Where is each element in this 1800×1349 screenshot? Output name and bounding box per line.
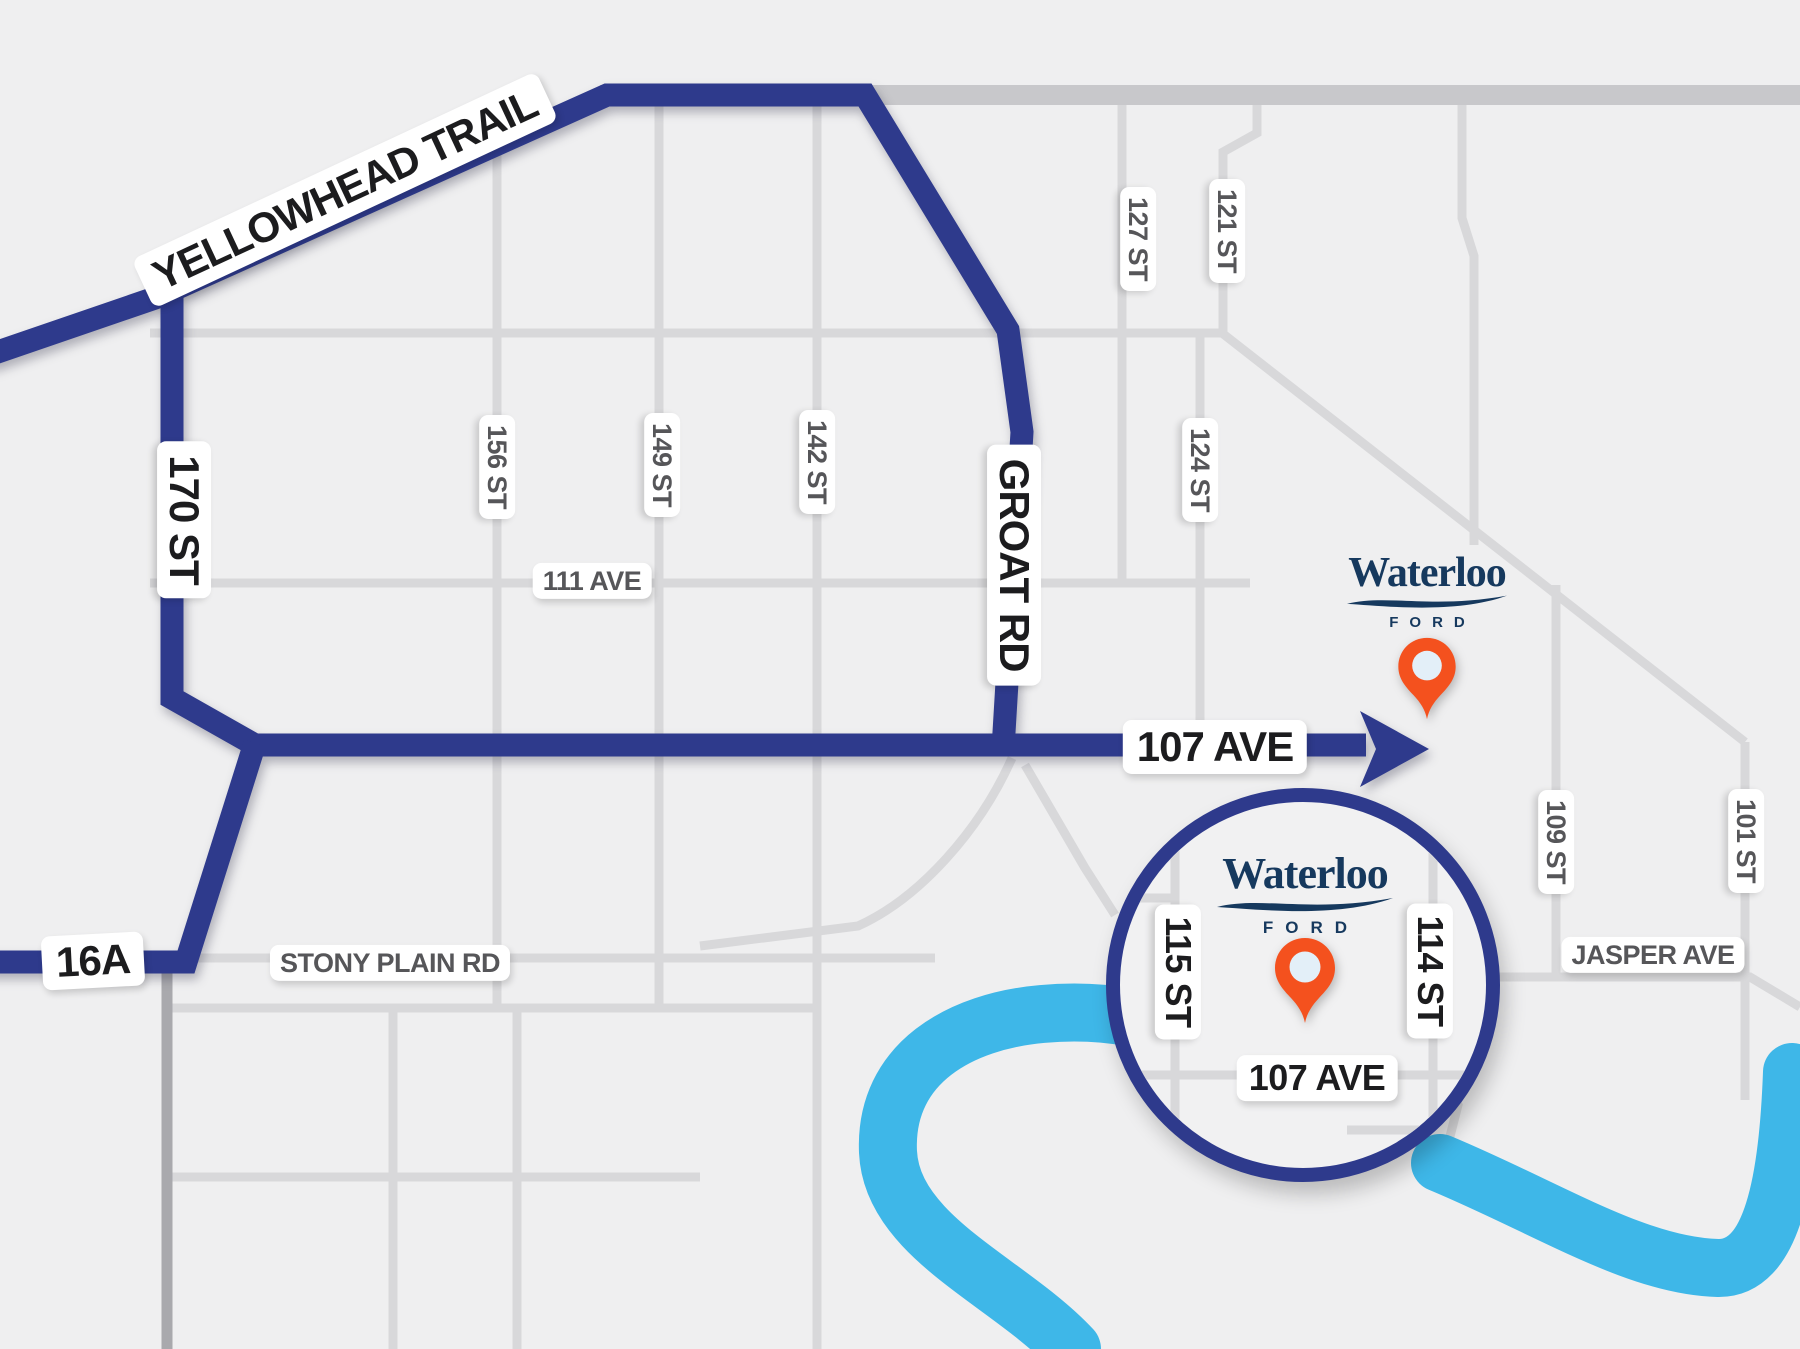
inset-label-107-ave: 107 AVE bbox=[1237, 1055, 1398, 1101]
road-valley-west bbox=[700, 758, 1012, 946]
label-121-st: 121 ST bbox=[1209, 179, 1245, 283]
label-101-st: 101 ST bbox=[1728, 789, 1764, 893]
label-107-ave: 107 AVE bbox=[1123, 720, 1307, 774]
label-111-ave: 111 AVE bbox=[533, 563, 652, 599]
inset-brand-wordmark: Waterloo bbox=[1222, 852, 1388, 896]
label-142-st: 142 ST bbox=[799, 410, 835, 514]
river-east-arm bbox=[1440, 1072, 1792, 1268]
label-156-st: 156 ST bbox=[479, 415, 515, 519]
inset-dealership-logo: Waterloo FORD bbox=[1203, 852, 1408, 938]
label-groat-rd: GROAT RD bbox=[987, 445, 1041, 686]
road-116-st bbox=[1462, 103, 1474, 545]
brand-wordmark: Waterloo bbox=[1348, 552, 1506, 594]
label-124-st: 124 ST bbox=[1182, 418, 1218, 522]
label-jasper-ave: JASPER AVE bbox=[1561, 937, 1744, 973]
label-149-st: 149 ST bbox=[644, 413, 680, 517]
label-109-st: 109 ST bbox=[1538, 790, 1574, 894]
label-127-st: 127 ST bbox=[1120, 187, 1156, 291]
inset-map-pin-icon bbox=[1273, 936, 1337, 1026]
brand-swoosh-icon bbox=[1203, 894, 1408, 916]
label-16a: 16A bbox=[41, 931, 146, 990]
route-arrowhead-icon bbox=[1360, 711, 1429, 787]
label-stony-plain-rd: STONY PLAIN RD bbox=[270, 945, 510, 981]
inset-brand-division: FORD bbox=[1263, 918, 1359, 938]
road-valley-east bbox=[1025, 765, 1115, 915]
dealership-logo: Waterloo FORD bbox=[1338, 552, 1516, 631]
route-16a bbox=[0, 743, 255, 962]
directions-map: Waterloo FORD 115 ST 114 ST 107 AVE Wate… bbox=[0, 0, 1800, 1349]
inset-label-115-st: 115 ST bbox=[1155, 904, 1201, 1039]
brand-swoosh-icon bbox=[1338, 592, 1516, 612]
inset-magnifier-circle: Waterloo FORD 115 ST 114 ST 107 AVE bbox=[1106, 788, 1500, 1182]
label-170-st: 170 ST bbox=[157, 441, 211, 598]
road-diagonal-east bbox=[1222, 333, 1745, 742]
inset-label-114-st: 114 ST bbox=[1407, 903, 1453, 1038]
brand-division: FORD bbox=[1389, 614, 1476, 631]
map-pin-icon bbox=[1396, 636, 1458, 722]
